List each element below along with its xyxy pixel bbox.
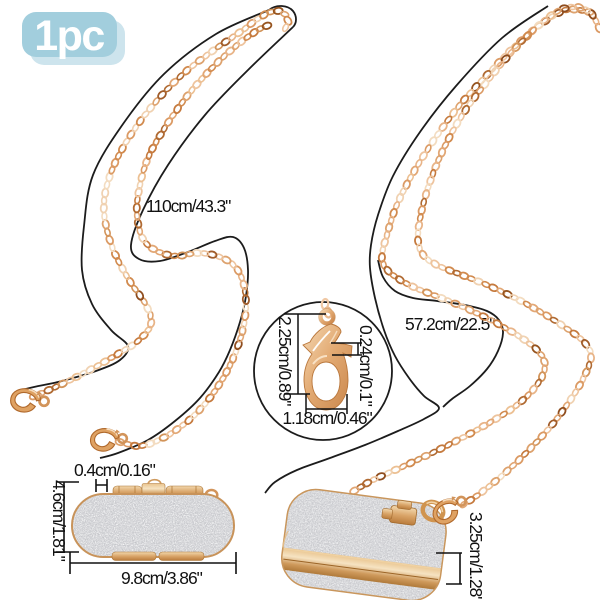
svg-text:110cm/43.3": 110cm/43.3": [146, 196, 231, 216]
svg-text:1.18cm/0.46": 1.18cm/0.46": [282, 408, 372, 428]
svg-text:9.8cm/3.86": 9.8cm/3.86": [121, 568, 203, 588]
svg-text:4.6cm/1.81": 4.6cm/1.81": [49, 480, 69, 562]
svg-text:2.25cm/0.89": 2.25cm/0.89": [275, 316, 295, 406]
svg-text:1pc: 1pc: [34, 12, 104, 60]
svg-text:3.25cm/1.28": 3.25cm/1.28": [466, 512, 486, 600]
svg-text:0.24cm/0.1": 0.24cm/0.1": [356, 325, 376, 407]
svg-text:0.4cm/0.16": 0.4cm/0.16": [74, 460, 156, 480]
svg-text:57.2cm/22.5": 57.2cm/22.5": [405, 314, 495, 334]
